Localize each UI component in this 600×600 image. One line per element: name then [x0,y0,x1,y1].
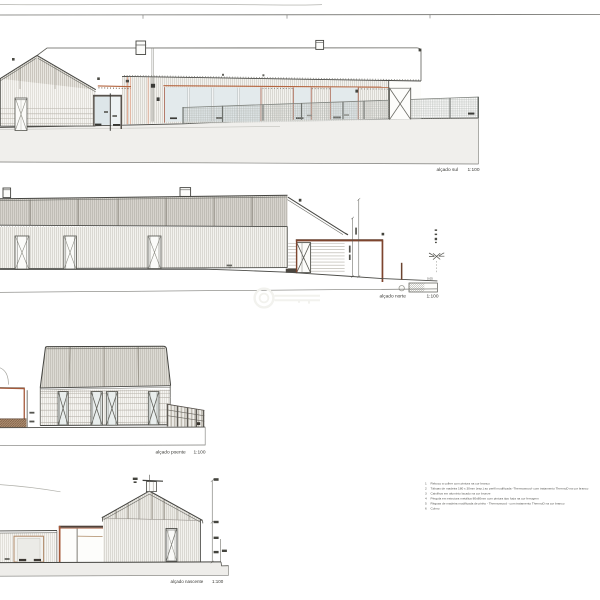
svg-text:alçado nascente: alçado nascente [171,579,204,584]
svg-text:1:100: 1:100 [468,167,480,173]
svg-text:Colmo: Colmo [431,506,440,510]
svg-text:6: 6 [425,506,427,510]
svg-text:1:100: 1:100 [212,579,224,584]
svg-text:1: 1 [425,481,427,485]
svg-text:Réguas de madeira modificada d: Réguas de madeira modificada de pinho - … [431,501,565,505]
svg-text:Tábuas de madeira 180 x 30mm (: Tábuas de madeira 180 x 30mm (esp.) ao p… [431,486,589,490]
svg-text:2: 2 [425,486,427,490]
svg-text:4: 4 [425,496,427,500]
svg-text:1:100: 1:100 [427,293,439,299]
svg-text:3: 3 [425,491,427,495]
svg-text:0.05: 0.05 [427,276,433,280]
svg-text:Caixilhos em alumínio lacado n: Caixilhos em alumínio lacado na cor bron… [431,491,491,495]
svg-text:5: 5 [425,501,427,505]
svg-text:alçado norte: alçado norte [380,293,407,299]
svg-text:alçado poente: alçado poente [156,449,186,455]
svg-text:Reboco a colher com pintura na: Reboco a colher com pintura na cor branc… [431,481,491,485]
svg-text:1:100: 1:100 [194,449,206,455]
svg-text:Pérgola em estrutura metálica: Pérgola em estrutura metálica 80x80mm co… [431,496,540,500]
svg-text:alçado sul: alçado sul [437,167,459,173]
